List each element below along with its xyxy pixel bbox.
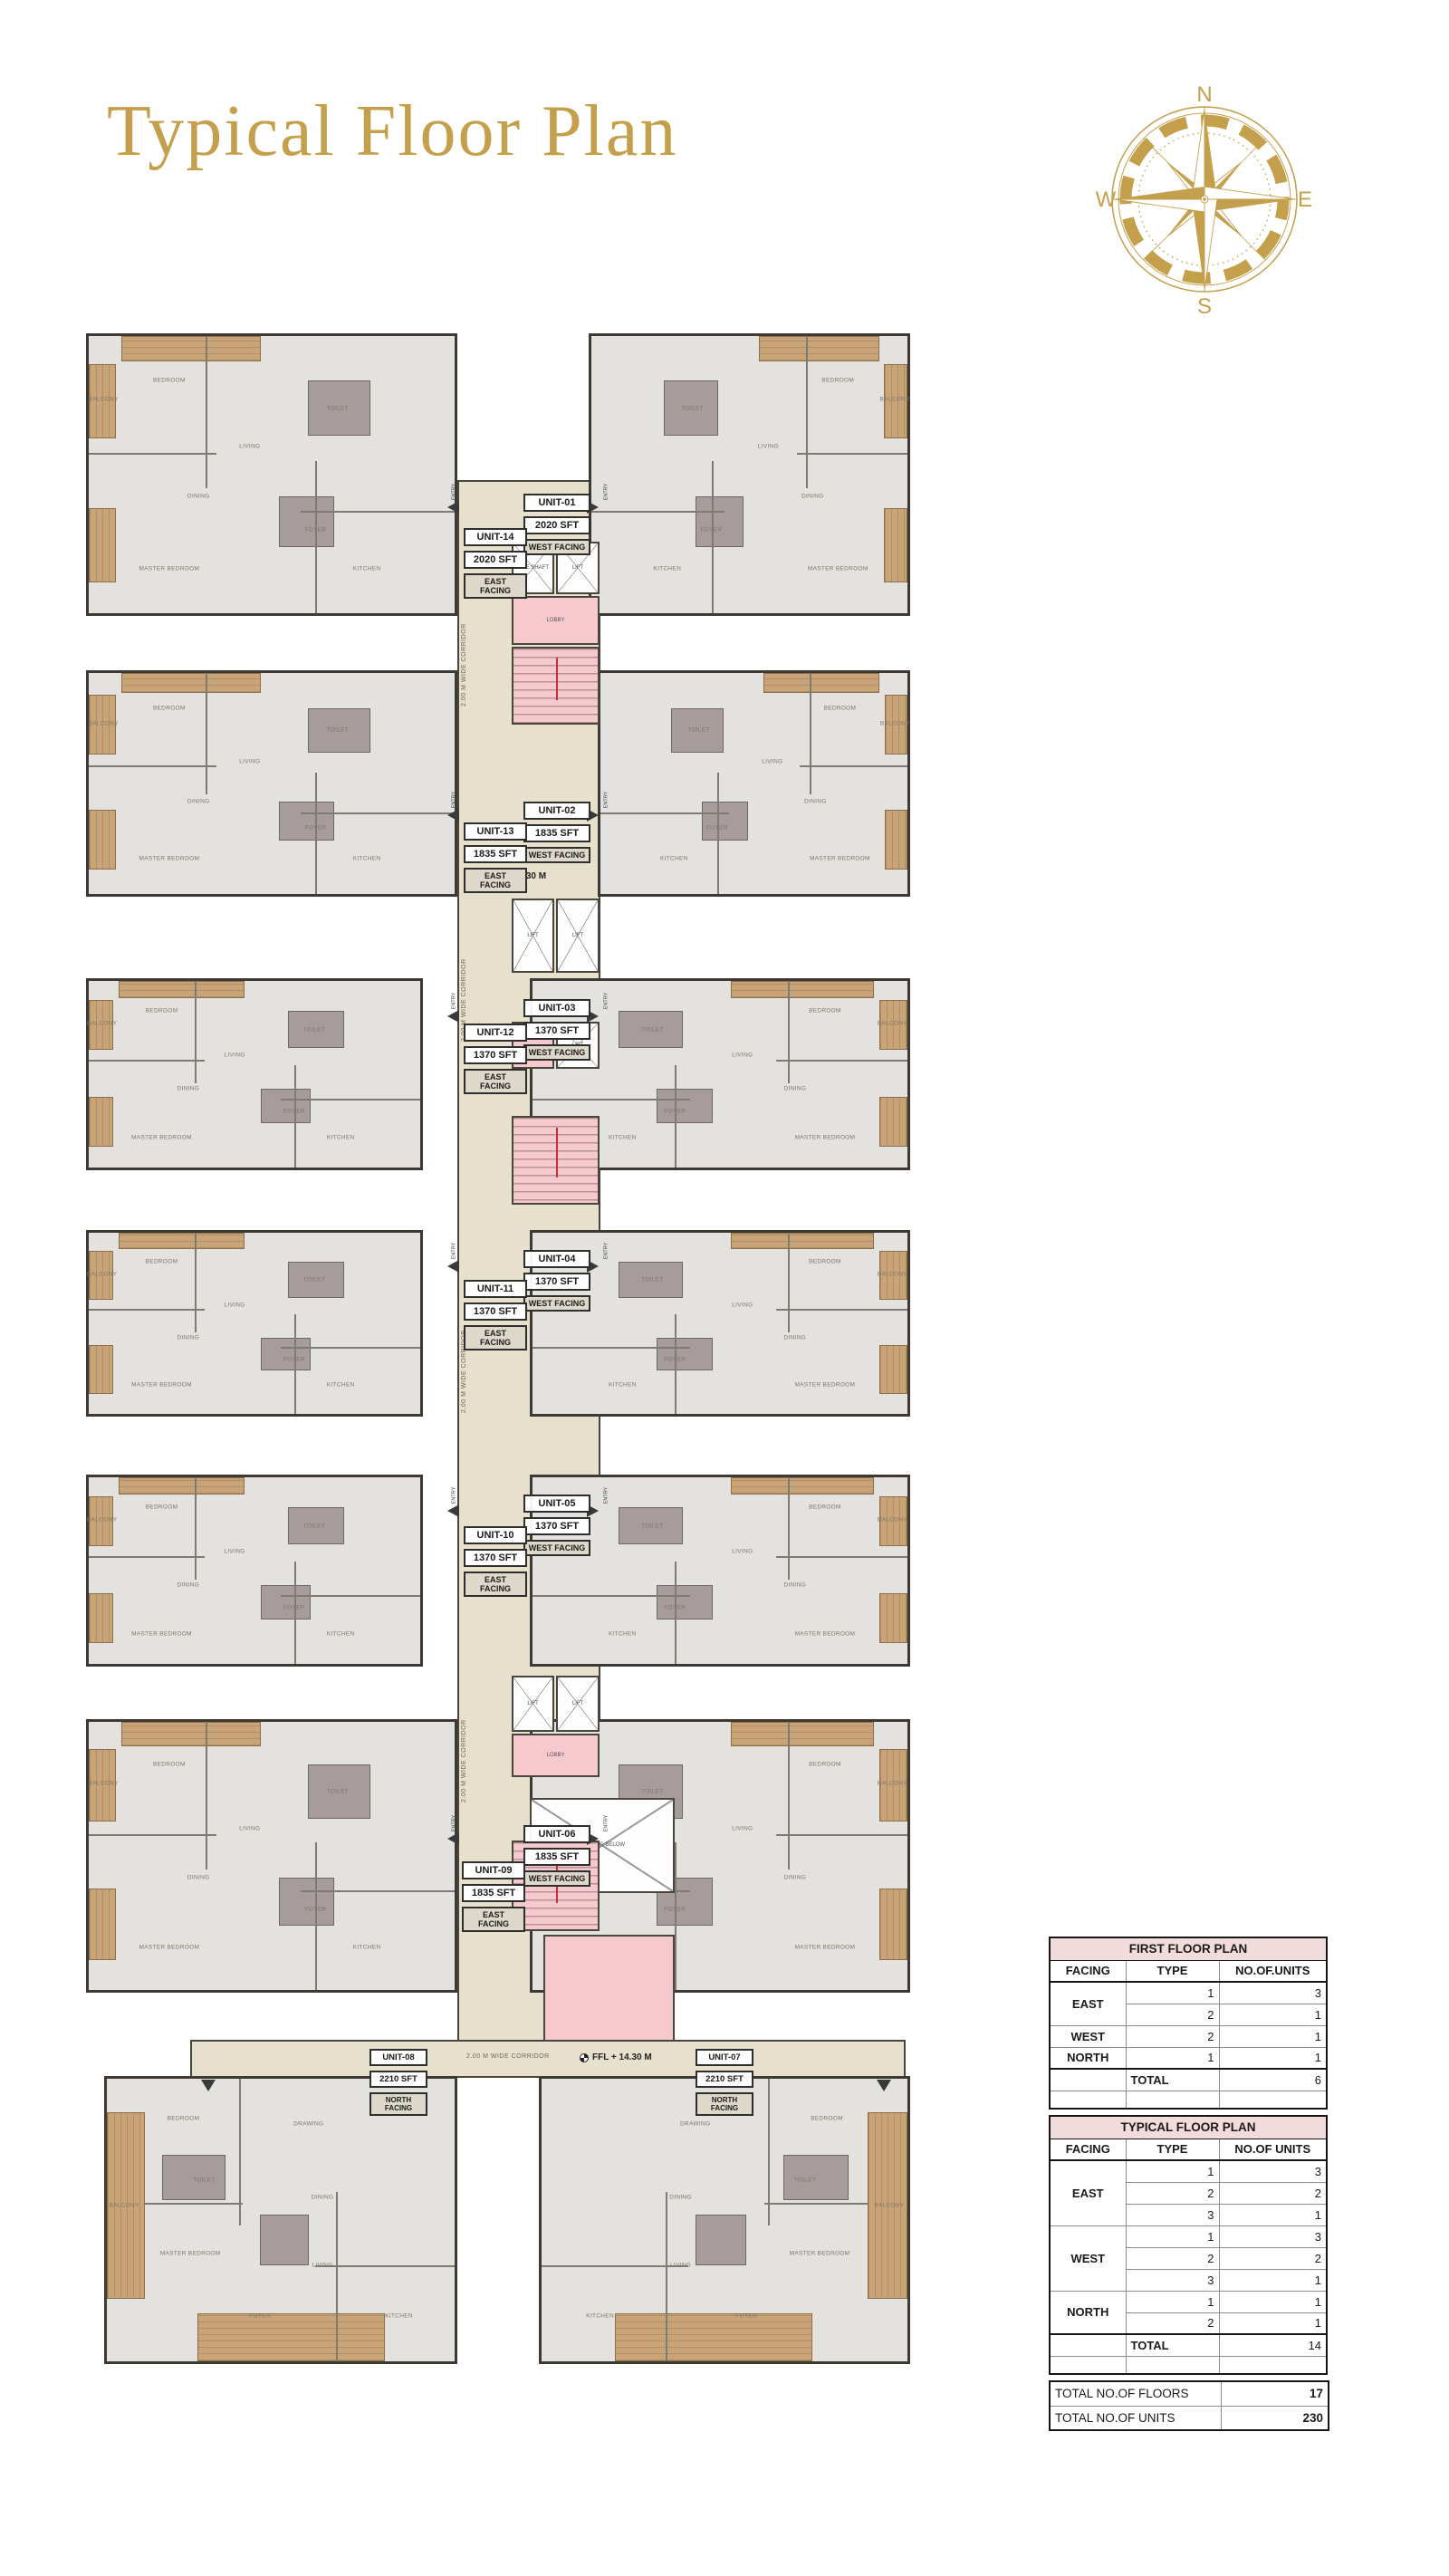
entry-arrow-icon bbox=[447, 1832, 459, 1845]
room-label: MASTER BEDROOM bbox=[131, 1631, 192, 1638]
unit-label-unit-07: UNIT-072210 SFTNORTH FACING bbox=[696, 2049, 753, 2116]
core-lift: LIFT bbox=[556, 899, 600, 973]
units-cell: 3 bbox=[1219, 2160, 1327, 2182]
room-label: MASTER BEDROOM bbox=[810, 855, 870, 861]
unit-facing: EAST FACING bbox=[464, 1572, 527, 1597]
entry-label: ENTRY bbox=[603, 484, 609, 501]
facing-cell: WEST bbox=[1050, 2025, 1126, 2047]
balcony-wood bbox=[89, 1593, 113, 1644]
room-label: TOILET bbox=[303, 1026, 325, 1033]
unit-id: UNIT-13 bbox=[464, 822, 527, 841]
unit-id: UNIT-05 bbox=[523, 1495, 590, 1513]
room-label: MASTER BEDROOM bbox=[139, 855, 200, 861]
unit-wing: BEDROOMTOILETLIVINGDININGMASTER BEDROOMK… bbox=[86, 333, 457, 616]
balcony-wood bbox=[731, 1233, 873, 1249]
empty-cell bbox=[1126, 2091, 1219, 2109]
interior-wall bbox=[89, 1309, 205, 1311]
room-label: LIVING bbox=[670, 2262, 691, 2268]
entry-label: ENTRY bbox=[451, 484, 456, 501]
entry-label: ENTRY bbox=[603, 1243, 609, 1260]
corridor-width-label: 2.00 M WIDE CORRIDOR bbox=[466, 2053, 550, 2060]
balcony-wood bbox=[879, 1889, 907, 1961]
entry-arrow-icon bbox=[447, 1260, 459, 1273]
interior-wall bbox=[294, 1065, 296, 1168]
balcony-wood bbox=[119, 1233, 245, 1249]
room-label: KITCHEN bbox=[353, 1944, 381, 1950]
room-label: BEDROOM bbox=[824, 706, 857, 712]
room-label: BEDROOM bbox=[153, 706, 186, 712]
room-label: BALCONY bbox=[87, 1021, 117, 1027]
empty-cell bbox=[1050, 2091, 1126, 2109]
unit-label-unit-12: UNIT-121370 SFTEAST FACING bbox=[464, 1024, 527, 1094]
interior-wall bbox=[315, 2265, 455, 2267]
room-label: TOILET bbox=[327, 405, 349, 411]
room-label: KITCHEN bbox=[653, 566, 681, 572]
room-label: TOILET bbox=[303, 1523, 325, 1529]
balcony-wood bbox=[731, 1477, 873, 1495]
unit-facing: EAST FACING bbox=[462, 1907, 525, 1932]
entry-label: ENTRY bbox=[603, 1815, 609, 1832]
unit-area: 1370 SFT bbox=[523, 1273, 590, 1291]
summary-label: TOTAL NO.OF UNITS bbox=[1050, 2406, 1221, 2430]
balcony-wood bbox=[89, 508, 116, 583]
unit-facing: WEST FACING bbox=[523, 1044, 590, 1061]
interior-wall bbox=[301, 812, 455, 814]
entry-label: ENTRY bbox=[451, 1815, 456, 1832]
typical-floor-table: TYPICAL FLOOR PLANFACINGTYPENO.OF UNITSE… bbox=[1049, 2115, 1328, 2375]
interior-wall bbox=[89, 1556, 205, 1558]
type-cell: 3 bbox=[1126, 2204, 1219, 2225]
unit-label-unit-02: UNIT-021835 SFTWEST FACING bbox=[523, 802, 590, 863]
room-label: DINING bbox=[801, 494, 824, 500]
total-label: TOTAL bbox=[1126, 2069, 1219, 2091]
interior-wall bbox=[145, 2203, 243, 2205]
interior-wall bbox=[675, 1562, 677, 1664]
compass-w-label: W bbox=[1096, 187, 1117, 212]
unit-facing: EAST FACING bbox=[464, 868, 527, 893]
unit-label-unit-05: UNIT-051370 SFTWEST FACING bbox=[523, 1495, 590, 1556]
room-label: MASTER BEDROOM bbox=[139, 1944, 200, 1950]
unit-facing: EAST FACING bbox=[464, 1069, 527, 1094]
balcony-wood bbox=[89, 1345, 113, 1394]
unit-area: 1370 SFT bbox=[464, 1302, 527, 1321]
toilet-room bbox=[657, 1338, 713, 1370]
unit-id: UNIT-07 bbox=[696, 2049, 753, 2066]
entry-label: ENTRY bbox=[603, 792, 609, 809]
unit-area: 2020 SFT bbox=[464, 551, 527, 569]
room-label: LIVING bbox=[758, 444, 779, 450]
room-label: BALCONY bbox=[87, 1517, 117, 1523]
balcony-wood bbox=[121, 1722, 261, 1746]
interior-wall bbox=[206, 1722, 207, 1870]
room-label: DINING bbox=[187, 798, 210, 804]
table-row: EAST13 bbox=[1050, 1982, 1327, 2004]
interior-wall bbox=[717, 773, 719, 894]
balcony-wood bbox=[197, 2313, 385, 2361]
balcony-wood bbox=[121, 673, 261, 693]
room-label: DINING bbox=[178, 1335, 200, 1341]
balcony-wood bbox=[731, 981, 873, 998]
room-label: BEDROOM bbox=[809, 1762, 841, 1768]
room-label: BEDROOM bbox=[809, 1259, 841, 1265]
entry-label: ENTRY bbox=[451, 792, 456, 809]
compass-rose: N E S W bbox=[1091, 80, 1318, 317]
interior-wall bbox=[533, 1595, 690, 1597]
room-label: TOILET bbox=[327, 1788, 349, 1794]
entry-arrow-icon bbox=[447, 809, 459, 822]
unit-area: 1835 SFT bbox=[462, 1884, 525, 1902]
interior-wall bbox=[315, 1842, 317, 1990]
type-cell: 1 bbox=[1126, 2160, 1219, 2182]
room-label: TOILET bbox=[327, 727, 349, 734]
room-label: DINING bbox=[178, 1582, 200, 1589]
lobby-core: LOBBY bbox=[512, 596, 600, 645]
units-cell: 1 bbox=[1219, 2025, 1327, 2047]
interior-wall bbox=[89, 1060, 205, 1062]
room-label: FOYER bbox=[283, 1357, 305, 1363]
ffl-text: FFL + 14.30 M bbox=[592, 2052, 652, 2062]
summary-value: 17 bbox=[1221, 2381, 1329, 2406]
room-label: BEDROOM bbox=[153, 1762, 186, 1768]
room-label: KITCHEN bbox=[327, 1382, 355, 1389]
room-label: BEDROOM bbox=[821, 377, 854, 383]
room-label: BALCONY bbox=[874, 2203, 904, 2209]
balcony-wood bbox=[884, 508, 907, 583]
room-label: MASTER BEDROOM bbox=[790, 2251, 850, 2257]
balcony-wood bbox=[763, 673, 880, 693]
unit-label-unit-10: UNIT-101370 SFTEAST FACING bbox=[464, 1526, 527, 1597]
unit-id: UNIT-04 bbox=[523, 1250, 590, 1268]
interior-wall bbox=[591, 511, 724, 513]
interior-wall bbox=[788, 1233, 790, 1332]
column-header-1: TYPE bbox=[1126, 1960, 1219, 1982]
units-cell: 1 bbox=[1219, 2047, 1327, 2069]
room-label: KITCHEN bbox=[609, 1382, 637, 1389]
unit-label-unit-08: UNIT-082210 SFTNORTH FACING bbox=[369, 2049, 427, 2116]
interior-wall bbox=[206, 673, 207, 794]
unit-wing: BEDROOMTOILETLIVINGDININGMASTER BEDROOMK… bbox=[86, 978, 423, 1170]
entry-arrow-icon bbox=[447, 501, 459, 514]
unit-id: UNIT-11 bbox=[464, 1280, 527, 1298]
room-label: FOYER bbox=[664, 1109, 686, 1115]
first-floor-table: FIRST FLOOR PLANFACINGTYPENO.OF.UNITSEAS… bbox=[1049, 1937, 1328, 2110]
interior-wall bbox=[294, 1314, 296, 1414]
room-label: MASTER BEDROOM bbox=[795, 1631, 856, 1638]
room-label: TOILET bbox=[687, 727, 709, 734]
interior-wall bbox=[806, 336, 808, 488]
table-title: TYPICAL FLOOR PLAN bbox=[1050, 2116, 1327, 2139]
units-cell: 3 bbox=[1219, 1982, 1327, 2004]
unit-label-unit-14: UNIT-142020 SFTEAST FACING bbox=[464, 528, 527, 599]
room-label: MASTER BEDROOM bbox=[139, 566, 200, 572]
room-label: DINING bbox=[784, 1874, 807, 1880]
room-label: FOYER bbox=[283, 1605, 305, 1611]
room-label: DINING bbox=[187, 1874, 210, 1880]
room-label: LIVING bbox=[224, 1302, 245, 1309]
totals-table-grid: TOTAL NO.OF FLOORS17TOTAL NO.OF UNITS230 bbox=[1049, 2380, 1329, 2431]
toilet-room bbox=[261, 1338, 311, 1370]
room-label: TOILET bbox=[641, 1788, 663, 1794]
room-label: KITCHEN bbox=[385, 2313, 413, 2320]
interior-wall bbox=[600, 812, 729, 814]
units-cell: 2 bbox=[1219, 2182, 1327, 2204]
total-value: 6 bbox=[1219, 2069, 1327, 2091]
room-label: BALCONY bbox=[878, 1021, 907, 1027]
core-lift: LIFT bbox=[512, 899, 554, 973]
stair-direction-line bbox=[556, 658, 558, 701]
interior-wall bbox=[206, 336, 207, 488]
room-label: BALCONY bbox=[878, 1517, 907, 1523]
room-label: LIVING bbox=[732, 1826, 753, 1832]
room-label: BEDROOM bbox=[811, 2115, 843, 2121]
unit-label-unit-06: UNIT-061835 SFTWEST FACING bbox=[523, 1825, 590, 1887]
summary-row: TOTAL NO.OF FLOORS17 bbox=[1050, 2381, 1329, 2406]
room-label: MASTER BEDROOM bbox=[131, 1135, 192, 1141]
room-label: MASTER BEDROOM bbox=[808, 566, 868, 572]
page-title: Typical Floor Plan bbox=[107, 91, 677, 173]
unit-area: 1370 SFT bbox=[523, 1022, 590, 1040]
empty-cell bbox=[1050, 2069, 1126, 2091]
toilet-room bbox=[696, 2215, 747, 2265]
entry-arrow-icon bbox=[447, 1010, 459, 1023]
interior-wall bbox=[301, 511, 455, 513]
table-row: NORTH11 bbox=[1050, 2291, 1327, 2312]
room-label: LIVING bbox=[239, 1826, 260, 1832]
room-label: KITCHEN bbox=[327, 1135, 355, 1141]
room-label: DINING bbox=[178, 1086, 200, 1092]
toilet-room bbox=[696, 496, 743, 546]
stair-direction-line bbox=[556, 1128, 558, 1177]
interior-wall bbox=[788, 1477, 790, 1580]
room-label: DRAWING bbox=[680, 2120, 710, 2127]
room-label: BEDROOM bbox=[146, 1259, 178, 1265]
interior-wall bbox=[797, 453, 907, 455]
first-floor-table-grid: FIRST FLOOR PLANFACINGTYPENO.OF.UNITSEAS… bbox=[1049, 1937, 1328, 2110]
unit-facing: NORTH FACING bbox=[696, 2092, 753, 2116]
room-label: BALCONY bbox=[878, 1781, 907, 1787]
toilet-room bbox=[279, 496, 334, 546]
interior-wall bbox=[675, 1314, 677, 1414]
interior-wall bbox=[712, 461, 714, 613]
toilet-room bbox=[657, 1585, 713, 1619]
toilet-room bbox=[279, 1878, 334, 1926]
facing-cell: WEST bbox=[1050, 2225, 1126, 2291]
room-label: LIVING bbox=[732, 1302, 753, 1309]
summary-value: 230 bbox=[1221, 2406, 1329, 2430]
room-label: TOILET bbox=[641, 1523, 663, 1529]
interior-wall bbox=[533, 1099, 690, 1101]
room-label: KITCHEN bbox=[660, 855, 688, 861]
room-label: BEDROOM bbox=[153, 377, 186, 383]
column-header-2: NO.OF UNITS bbox=[1219, 2139, 1327, 2160]
units-cell: 1 bbox=[1219, 2291, 1327, 2312]
core-lift: LIFT bbox=[556, 1676, 600, 1732]
interior-wall bbox=[195, 1233, 197, 1332]
room-label: FOYER bbox=[735, 2313, 757, 2320]
room-label: DINING bbox=[187, 494, 210, 500]
interior-wall bbox=[301, 1890, 455, 1892]
room-label: LIVING bbox=[224, 1053, 245, 1059]
balcony-wood bbox=[615, 2313, 812, 2361]
interior-wall bbox=[336, 2192, 338, 2361]
type-cell: 2 bbox=[1126, 2004, 1219, 2025]
summary-label: TOTAL NO.OF FLOORS bbox=[1050, 2381, 1221, 2406]
room-label: MASTER BEDROOM bbox=[160, 2251, 221, 2257]
typical-floor-table-grid: TYPICAL FLOOR PLANFACINGTYPENO.OF UNITSE… bbox=[1049, 2115, 1328, 2375]
room-label: FOYER bbox=[664, 1907, 686, 1913]
compass-n-label: N bbox=[1196, 82, 1212, 107]
empty-cell bbox=[1050, 2356, 1126, 2374]
unit-area: 1835 SFT bbox=[464, 845, 527, 863]
room-label: FOYER bbox=[664, 1357, 686, 1363]
room-label: FOYER bbox=[701, 527, 723, 533]
unit-facing: WEST FACING bbox=[523, 539, 590, 555]
unit-label-unit-09: UNIT-091835 SFTEAST FACING bbox=[462, 1861, 525, 1932]
room-label: FOYER bbox=[305, 824, 327, 831]
toilet-room bbox=[702, 802, 748, 841]
stair-core bbox=[512, 1116, 600, 1205]
type-cell: 2 bbox=[1126, 2312, 1219, 2334]
balcony-wood bbox=[879, 1097, 907, 1148]
room-label: MASTER BEDROOM bbox=[795, 1382, 856, 1389]
type-cell: 1 bbox=[1126, 2291, 1219, 2312]
unit-facing: EAST FACING bbox=[464, 1325, 527, 1350]
unit-wing: BEDROOMTOILETLIVINGDININGMASTER BEDROOMK… bbox=[86, 1230, 423, 1417]
room-label: DINING bbox=[784, 1086, 807, 1092]
unit-facing: NORTH FACING bbox=[369, 2092, 427, 2116]
room-label: DRAWING bbox=[293, 2120, 323, 2127]
column-header-0: FACING bbox=[1050, 1960, 1126, 1982]
interior-wall bbox=[788, 1722, 790, 1870]
column-header-2: NO.OF.UNITS bbox=[1219, 1960, 1327, 1982]
lobby-core: LOBBY bbox=[512, 1734, 600, 1777]
room-label: BALCONY bbox=[89, 721, 119, 727]
total-value: 14 bbox=[1219, 2334, 1327, 2356]
units-cell: 1 bbox=[1219, 2312, 1327, 2334]
table-title: FIRST FLOOR PLAN bbox=[1050, 1937, 1327, 1960]
table-row: WEST13 bbox=[1050, 2225, 1327, 2247]
toilet-room bbox=[260, 2215, 309, 2265]
balcony-wood bbox=[731, 1722, 873, 1746]
balcony-wood bbox=[89, 810, 116, 870]
balcony-wood bbox=[121, 336, 261, 361]
floor-plan-page: { "page": { "title": "Typical Floor Plan… bbox=[0, 0, 1449, 2576]
room-label: DINING bbox=[312, 2195, 334, 2201]
interior-wall bbox=[294, 1562, 296, 1664]
entry-label: ENTRY bbox=[451, 1243, 456, 1260]
core-lift: LIFT bbox=[512, 1676, 554, 1732]
room-label: DINING bbox=[804, 798, 827, 804]
interior-wall bbox=[810, 673, 811, 794]
interior-wall bbox=[89, 1834, 216, 1836]
interior-wall bbox=[800, 765, 907, 767]
room-label: BALCONY bbox=[878, 1272, 907, 1278]
unit-label-unit-13: UNIT-131835 SFTEAST FACING bbox=[464, 822, 527, 893]
summary-row: TOTAL NO.OF UNITS230 bbox=[1050, 2406, 1329, 2430]
interior-wall bbox=[281, 1595, 420, 1597]
room-label: BALCONY bbox=[879, 397, 909, 403]
unit-wing: BEDROOMDRAWINGTOILETDININGMASTER BEDROOM… bbox=[104, 2076, 457, 2364]
unit-id: UNIT-01 bbox=[523, 494, 590, 512]
room-label: FOYER bbox=[664, 1605, 686, 1611]
table-row: WEST21 bbox=[1050, 2025, 1327, 2047]
unit-label-unit-04: UNIT-041370 SFTWEST FACING bbox=[523, 1250, 590, 1312]
column-header-0: FACING bbox=[1050, 2139, 1126, 2160]
room-label: BALCONY bbox=[89, 397, 119, 403]
room-label: LIVING bbox=[312, 2262, 333, 2268]
room-label: DINING bbox=[784, 1335, 807, 1341]
type-cell: 2 bbox=[1126, 2025, 1219, 2047]
room-label: MASTER BEDROOM bbox=[795, 1944, 856, 1950]
interior-wall bbox=[315, 773, 317, 894]
unit-label-unit-01: UNIT-012020 SFTWEST FACING bbox=[523, 494, 590, 555]
corridor-width-label: 2.00 M WIDE CORRIDOR bbox=[461, 589, 467, 706]
room-label: BEDROOM bbox=[146, 1504, 178, 1510]
ffl-marker-lower: FFL + 14.30 M bbox=[580, 2052, 652, 2062]
unit-id: UNIT-14 bbox=[464, 528, 527, 546]
balcony-wood bbox=[879, 1593, 907, 1644]
unit-area: 1835 SFT bbox=[523, 824, 590, 842]
room-label: KITCHEN bbox=[609, 1631, 637, 1638]
interior-wall bbox=[281, 1099, 420, 1101]
unit-area: 1370 SFT bbox=[464, 1046, 527, 1064]
room-label: FOYER bbox=[706, 824, 728, 831]
unit-id: UNIT-09 bbox=[462, 1861, 525, 1879]
units-cell: 2 bbox=[1219, 2247, 1327, 2269]
interior-wall bbox=[666, 2192, 667, 2361]
unit-wing: BEDROOMTOILETLIVINGDININGMASTER BEDROOMK… bbox=[589, 333, 910, 616]
empty-cell bbox=[1050, 2334, 1126, 2356]
empty-cell bbox=[1126, 2356, 1219, 2374]
unit-area: 1835 SFT bbox=[523, 1848, 590, 1866]
room-label: LIVING bbox=[762, 758, 782, 764]
room-label: LIVING bbox=[239, 444, 260, 450]
unit-label-unit-03: UNIT-031370 SFTWEST FACING bbox=[523, 999, 590, 1061]
interior-wall bbox=[776, 1556, 907, 1558]
unit-area: 2210 SFT bbox=[369, 2071, 427, 2088]
compass-icon: N E S W bbox=[1091, 80, 1318, 317]
unit-wing: BEDROOMDRAWINGTOILETDININGMASTER BEDROOM… bbox=[539, 2076, 910, 2364]
entry-arrow-icon bbox=[201, 2080, 216, 2091]
unit-facing: EAST FACING bbox=[464, 573, 527, 599]
balcony-wood bbox=[119, 1477, 245, 1495]
room-label: TOILET bbox=[681, 405, 703, 411]
table-row: EAST13 bbox=[1050, 2160, 1327, 2182]
units-cell: 1 bbox=[1219, 2204, 1327, 2225]
room-label: DINING bbox=[669, 2195, 692, 2201]
lobby-core bbox=[543, 1935, 675, 2042]
interior-wall bbox=[776, 1834, 907, 1836]
empty-cell bbox=[1219, 2356, 1327, 2374]
room-label: TOILET bbox=[641, 1277, 663, 1283]
room-label: FOYER bbox=[305, 1907, 327, 1913]
room-label: KITCHEN bbox=[327, 1631, 355, 1638]
interior-wall bbox=[195, 1477, 197, 1580]
unit-id: UNIT-02 bbox=[523, 802, 590, 820]
entry-label: ENTRY bbox=[451, 993, 456, 1010]
room-label: MASTER BEDROOM bbox=[131, 1382, 192, 1389]
room-label: KITCHEN bbox=[353, 566, 381, 572]
unit-area: 1370 SFT bbox=[523, 1517, 590, 1535]
unit-facing: WEST FACING bbox=[523, 1870, 590, 1887]
room-label: KITCHEN bbox=[609, 1135, 637, 1141]
type-cell: 2 bbox=[1126, 2247, 1219, 2269]
benchmark-icon bbox=[580, 2053, 589, 2062]
room-label: BEDROOM bbox=[146, 1007, 178, 1014]
room-label: LIVING bbox=[732, 1053, 753, 1059]
stair-core bbox=[512, 647, 600, 725]
balcony-wood bbox=[759, 336, 879, 361]
